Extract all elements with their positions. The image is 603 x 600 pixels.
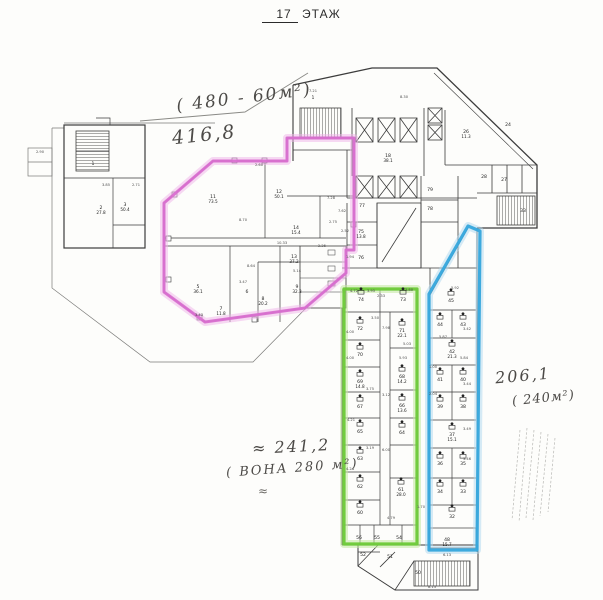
dimension-label: 5.92: [451, 286, 459, 290]
room-area-label: 13.8: [356, 234, 366, 239]
workstation-icon: [449, 423, 455, 429]
workstation-icon: [437, 395, 443, 401]
room-number-label: 50: [415, 570, 421, 576]
dimension-label: 3.42: [463, 327, 471, 331]
workstation-icon: [437, 313, 443, 319]
room-area-label: 11.3: [461, 134, 471, 139]
dimension-label: 4.72: [350, 289, 358, 293]
room-number-label: 52: [360, 552, 366, 558]
dimension-label: 8.70: [239, 218, 248, 222]
room-number-label: 51: [387, 554, 393, 560]
room-number-label: 33: [520, 208, 526, 214]
dimension-label: 10.33: [277, 241, 287, 245]
room-number-label: 60: [357, 510, 363, 516]
dimension-label: 5.14: [293, 269, 302, 273]
room-area-label: 13.6: [397, 408, 407, 413]
room-number-label: 1: [92, 161, 95, 167]
dimension-label: 4.79: [387, 516, 396, 520]
dimension-label: 6.13: [443, 553, 451, 557]
workstation-icon: [460, 368, 466, 374]
dimension-label: 4.00: [346, 330, 355, 334]
dimension-label: 7.62: [338, 209, 346, 213]
room-area-label: 50.4: [120, 207, 130, 212]
room-area-label: 20.2: [258, 301, 268, 306]
room-number-label: 41: [437, 377, 443, 383]
room-area-label: 22.1: [397, 333, 407, 338]
workstation-icon: [460, 395, 466, 401]
workstation-icon: [398, 478, 404, 484]
dimension-label: 3.43: [195, 313, 203, 317]
dimension-label: 2.33: [377, 294, 385, 298]
highlight-green: [344, 289, 417, 544]
room-area-label: 11.8: [216, 311, 226, 316]
dimension-label: 2.75: [329, 220, 337, 224]
workstation-icon: [357, 317, 363, 323]
room-number-label: 62: [357, 484, 363, 490]
room-number-label: 32: [449, 514, 455, 520]
dimension-label: 3.47: [239, 280, 247, 284]
room-number-label: 78: [427, 206, 433, 212]
highlight-blue-halo: [429, 226, 480, 550]
workstation-icon: [357, 370, 363, 376]
room-area-label: 38.1: [383, 158, 393, 163]
dimension-label: 1.00: [429, 365, 438, 369]
room-area-label: 21.3: [447, 354, 457, 359]
room-number-label: 67: [357, 404, 363, 410]
room-number-label: 70: [357, 352, 363, 358]
workstation-icon: [357, 420, 363, 426]
workstation-icon: [437, 368, 443, 374]
room-area-label: 37.2: [289, 259, 299, 264]
room-number-label: 73: [400, 297, 406, 303]
workstation-icon: [449, 340, 455, 346]
workstation-icon: [399, 421, 405, 427]
dimension-label: 3.80: [405, 288, 414, 292]
dimension-label: 3.12: [382, 393, 390, 397]
room-number-label: 54: [396, 535, 402, 541]
room-number-label: 55: [374, 535, 380, 541]
room-area-label: 14.2: [397, 379, 407, 384]
room-number-label: 45: [448, 298, 454, 304]
dimension-label: 8.64: [247, 264, 256, 268]
dimension-label: 8.13: [428, 585, 436, 589]
dimension-label: 3.75: [366, 387, 374, 391]
room-number-label: 6: [246, 289, 249, 295]
workstation-icon: [437, 480, 443, 486]
workstation-icon: [357, 501, 363, 507]
dimension-label: 3.46: [463, 457, 472, 461]
room-area-label: 73.5: [208, 199, 218, 204]
room-area-label: 15.4: [291, 230, 301, 235]
workstation-icon: [460, 313, 466, 319]
room-area-label: 15.7: [442, 542, 452, 547]
dimension-label: 2.90: [36, 150, 45, 154]
dimension-label: 5.03: [403, 342, 411, 346]
floor-plan-page: 17 ЭТАЖ: [0, 0, 603, 600]
dimension-label: 7.98: [382, 326, 391, 330]
room-number-label: 44: [437, 322, 443, 328]
workstation-icon: [399, 319, 405, 325]
dimension-label: 1.94: [346, 255, 355, 259]
dimension-label: 2.25: [318, 244, 326, 248]
highlight-green-halo: [344, 289, 417, 544]
dimension-label: 7.28: [327, 196, 336, 200]
room-area-label: 14.8: [355, 384, 365, 389]
workstation-icon: [399, 365, 405, 371]
dimension-label: 8.30: [400, 95, 409, 99]
room-number-label: 34: [437, 489, 443, 495]
workstation-icon: [357, 395, 363, 401]
room-number-label: 38: [460, 404, 466, 410]
workstation-icon: [449, 505, 455, 511]
dimension-label: 4.21: [347, 418, 355, 422]
staircase-icon: [300, 108, 341, 137]
right-stair-annex: [477, 165, 537, 225]
room-number-label: 24: [505, 122, 511, 128]
room-number-label: 33: [460, 489, 466, 495]
workstation-icon: [357, 343, 363, 349]
room-number-label: 77: [359, 203, 365, 209]
room-number-label: 76: [358, 255, 364, 261]
room-number-label: 64: [399, 430, 405, 436]
workstation-icon: [399, 394, 405, 400]
room-number-label: 28: [481, 174, 487, 180]
dimension-label: 2.04: [429, 392, 438, 396]
room-number-label: 27: [501, 177, 507, 183]
dimension-label: 1.70: [417, 505, 426, 509]
dimension-label: 2.52: [341, 229, 349, 233]
room-area-label: 50.1: [274, 194, 284, 199]
room-number-label: 74: [358, 297, 364, 303]
room-number-label: 65: [357, 429, 363, 435]
room-area-label: 28.0: [396, 492, 406, 497]
room-number-label: 36: [437, 461, 443, 467]
room-number-label: 79: [427, 187, 433, 193]
room-area-label: 36.1: [193, 289, 203, 294]
room-area-label: 27.8: [96, 210, 106, 215]
dimension-label: 2.71: [132, 183, 140, 187]
dimension-label: 3.85: [102, 183, 110, 187]
dimension-label: 3.49: [463, 427, 472, 431]
room-area-label: 32.3: [292, 289, 302, 294]
room-area-label: 15.1: [447, 437, 457, 442]
workstation-icon: [437, 452, 443, 458]
workstation-icon: [357, 447, 363, 453]
room-number-label: 56: [356, 535, 362, 541]
dimension-label: 3.44: [463, 382, 472, 386]
handwritten-squiggle: ≈: [258, 484, 268, 498]
workstation-icon: [460, 480, 466, 486]
dimension-label: 3.95: [367, 289, 375, 293]
dimension-label: 6.00: [382, 448, 391, 452]
workstation-icon: [357, 475, 363, 481]
elevator-shaft-icon: [356, 108, 442, 198]
room-number-label: 35: [460, 461, 466, 467]
dimension-label: 5.87: [439, 335, 447, 339]
illegible-stamp: [512, 428, 555, 522]
dimension-label: 4.00: [346, 356, 355, 360]
room-number-label: 39: [437, 404, 443, 410]
staircase-icon: [497, 196, 535, 225]
dimension-label: 5.84: [460, 356, 469, 360]
room-number-label: 72: [357, 326, 363, 332]
dimension-label: 3.19: [366, 446, 375, 450]
dimension-label: 2.60: [255, 163, 264, 167]
dimension-label: 5.93: [399, 356, 407, 360]
staircase-icon: [414, 561, 470, 586]
dimension-label: 3.50: [371, 316, 380, 320]
